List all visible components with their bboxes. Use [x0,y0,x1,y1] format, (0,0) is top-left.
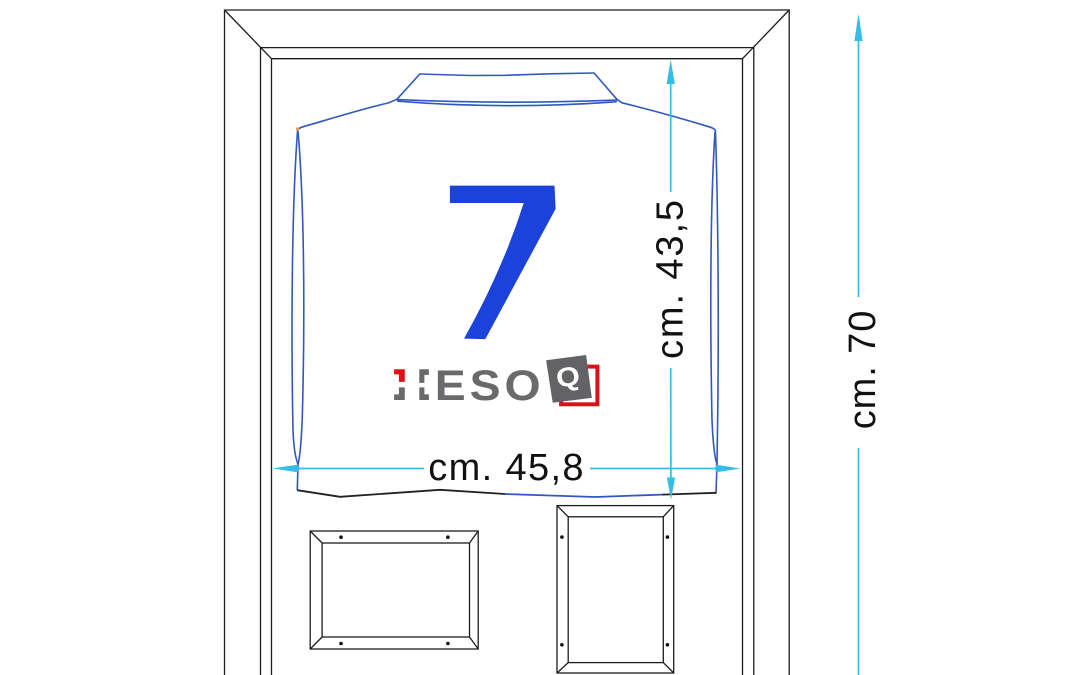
svg-text:cm. 70: cm. 70 [842,310,884,430]
svg-text:ESO: ESO [435,363,545,410]
svg-text:cm. 45,8: cm. 45,8 [428,447,585,489]
svg-text:cm. 43,5: cm. 43,5 [650,198,692,359]
svg-text:Q: Q [554,361,582,394]
